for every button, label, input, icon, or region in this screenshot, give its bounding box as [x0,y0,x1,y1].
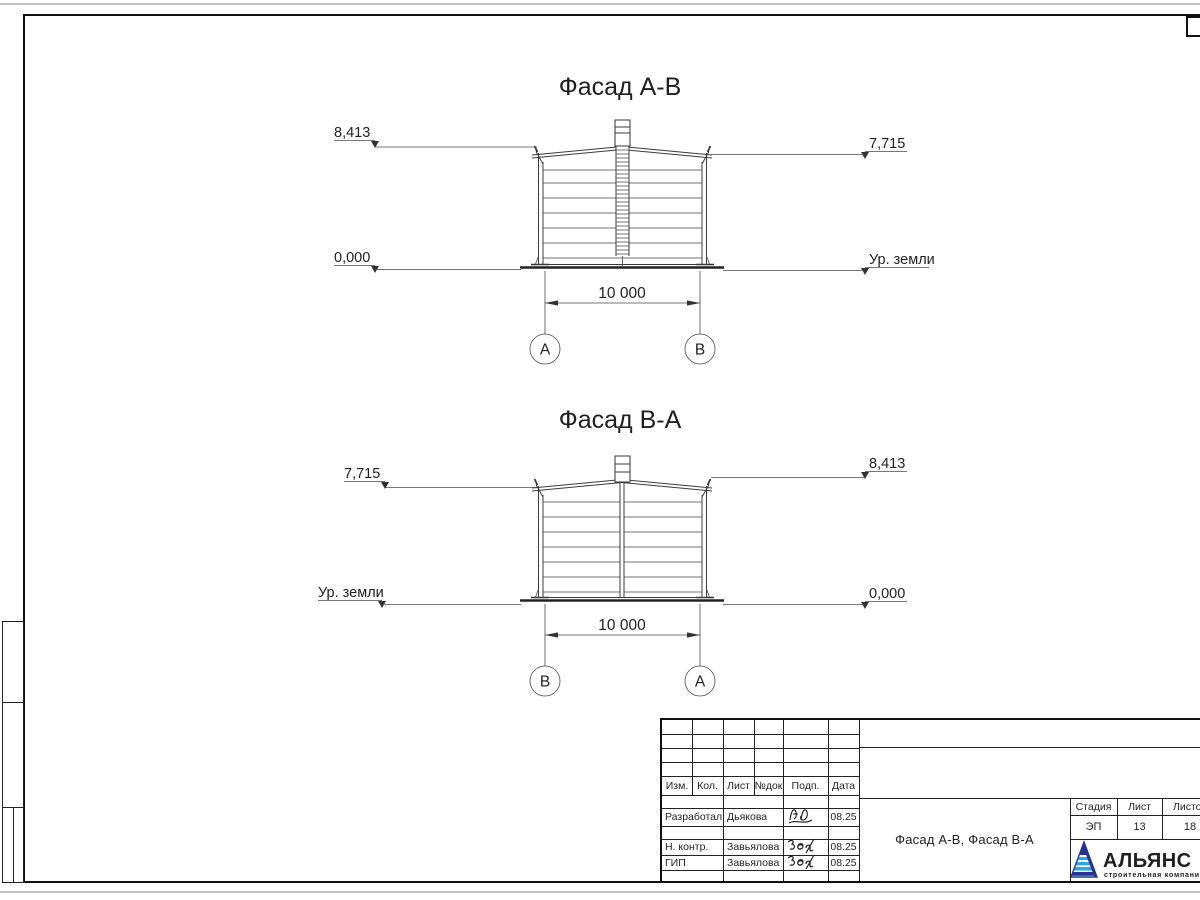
rev-col-data: Дата [828,776,859,795]
row-date: 08.25 [828,839,859,855]
facade2-elev-top-right: 8,413 [869,456,905,472]
row-name: Завьялова [724,839,783,855]
title-block: Изм. Кол. Лист №док Подп. Дата Разработа… [660,718,1200,883]
facade1-elev-top-right: 7,715 [869,136,905,152]
facade1-elev-bottom-right: Ур. земли [869,252,935,268]
facade2-dim-label: 10 000 [598,617,646,634]
logo-pyramid [1071,840,1097,877]
facade2-axis-right: А [695,674,706,691]
logo-company-name: АЛЬЯНС [1103,850,1192,872]
signature-zavyalova [784,853,828,872]
sheet-label: Лист [1117,798,1162,815]
facade2-elev-bottom-left: Ур. земли [318,585,384,601]
rev-col-izm: Изм. [662,776,692,795]
axis-bubbles: А В [530,334,715,364]
sheet-value: 13 [1117,815,1162,839]
facade1-elev-bottom-left: 0,000 [334,250,370,266]
roof-ladder [615,120,630,266]
facade2-elev-bottom-right: 0,000 [869,586,905,602]
rev-col-kol: Кол. [692,776,723,795]
row-role: Разработал [662,808,723,826]
row-role: ГИП [662,855,723,870]
row-role: Н. контр. [662,839,723,855]
document-title: Фасад А-В, Фасад В-А [859,798,1070,881]
logo-tagline: строительная компания [1104,872,1200,879]
facade2-elev-top-left: 7,715 [344,466,380,482]
signature-scribble [784,804,824,826]
facade2-title: Фасад В-А [559,406,682,434]
rev-col-list: Лист [723,776,754,795]
signature-scribble [784,853,818,871]
axis-bubbles: В А [530,666,715,696]
company-logo: АЛЬЯНС строительная компания [1071,840,1200,883]
sheets-total-value: 18 [1162,815,1200,839]
dimension-width: 10 000 [545,271,700,334]
drawing-sheet: Фасад А-В [0,0,1200,900]
stage-value: ЭП [1070,815,1117,839]
facade-b-a: Фасад В-А 7,715 8,413 [318,406,907,696]
facade1-axis-left: А [540,342,551,359]
row-date: 08.25 [828,855,859,870]
signature-dyakova [784,804,828,828]
elevation-marks: 7,715 8,413 Ур. земли 0,000 [318,456,907,609]
alliance-logo: АЛЬЯНС строительная компания [1071,840,1200,882]
dimension-width: 10 000 [545,604,700,666]
stage-label: Стадия [1070,798,1117,815]
row-date: 08.25 [828,808,859,826]
row-name: Дьякова [724,808,783,826]
row-name: Завьялова [724,855,783,870]
rev-col-ndok: №док [754,776,783,795]
facade1-dim-label: 10 000 [598,285,646,302]
sheets-total-label: Листов [1162,798,1200,815]
facade1-elev-top-left: 8,413 [334,125,370,141]
facade1-axis-right: В [695,342,705,359]
facade-a-b: Фасад А-В [334,73,935,364]
facade2-axis-left: В [540,674,550,691]
facade1-title: Фасад А-В [559,73,682,101]
rev-col-podp: Подп. [783,776,828,795]
